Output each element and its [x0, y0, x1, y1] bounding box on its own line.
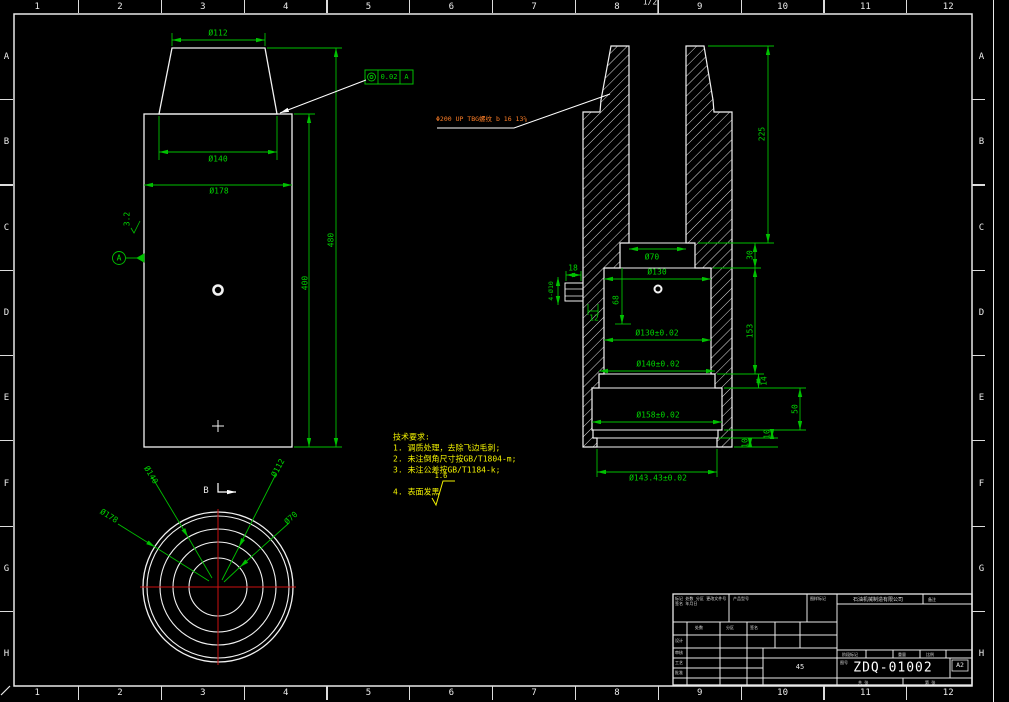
zone-label: 11	[860, 688, 871, 698]
dim-12: 12	[589, 314, 599, 323]
zone-tick	[78, 0, 79, 13]
zone-tick	[244, 0, 245, 13]
dim-14: 14	[760, 376, 769, 386]
tolerance-value: 0.02	[381, 73, 398, 81]
zone-label: 6	[449, 2, 454, 12]
dim-30: 30	[746, 250, 755, 260]
zone-tick	[492, 0, 493, 13]
zone-tick	[972, 270, 985, 271]
zone-tick	[741, 686, 742, 700]
dim-d140-tol: Ø140±0.02	[636, 360, 679, 369]
zone-tick	[658, 0, 659, 13]
dim-400: 400	[301, 276, 310, 290]
zone-tick	[492, 686, 493, 700]
tb-bottom-label-2: 第 张	[925, 680, 935, 685]
zone-label: 1	[34, 2, 39, 12]
zone-label: 10	[777, 688, 788, 698]
notes-item-1: 1. 调质处理，去除飞边毛刺;	[393, 443, 500, 454]
tb-row-label-2: 审核	[675, 650, 683, 655]
zone-tick	[972, 99, 985, 100]
zone-tick	[823, 0, 824, 13]
sheet-frame	[1, 0, 994, 702]
zone-label: C	[4, 223, 9, 233]
notes-surface-value: 1.6	[435, 472, 448, 480]
notes-item-4: 4. 表面发黑	[393, 487, 439, 498]
zone-tick	[161, 0, 162, 13]
zone-label: 8	[614, 688, 619, 698]
zone-label: 4	[283, 688, 288, 698]
zone-label: 5	[366, 688, 371, 698]
dim-68: 68	[612, 295, 621, 305]
centerlines	[140, 509, 296, 665]
zone-label: 7	[531, 2, 536, 12]
zone-label: 9	[697, 2, 702, 12]
zone-label: A	[4, 52, 9, 62]
zone-label: 12	[943, 2, 954, 12]
dim-d130: Ø130	[647, 268, 666, 277]
dim-d130-tol: Ø130±0.02	[635, 329, 678, 338]
zone-label: 3	[200, 2, 205, 12]
dim-10b: 10	[741, 438, 750, 448]
dim-50: 50	[791, 404, 800, 414]
thread-note: Φ200 UP TBG螺纹 b 16 13⅝	[436, 113, 527, 123]
zone-tick	[575, 0, 576, 13]
zone-label: 12	[943, 688, 954, 698]
tb-company: 石油机械制造有限公司	[853, 597, 903, 603]
zone-tick	[906, 686, 907, 700]
tb-col-header-1: 处数	[695, 625, 703, 630]
zone-tick	[972, 184, 985, 185]
zone-label: 10	[777, 2, 788, 12]
zone-label: D	[979, 308, 984, 318]
dim-d178: Ø178	[209, 187, 228, 196]
zone-tick	[78, 686, 79, 700]
zone-tick	[326, 0, 327, 13]
tolerance-datum: A	[404, 73, 408, 81]
view-direction-arrow	[218, 483, 236, 492]
zone-label: E	[4, 393, 9, 403]
zone-label: 4	[283, 2, 288, 12]
zone-label: 9	[697, 688, 702, 698]
zone-tick	[161, 686, 162, 700]
zone-label: D	[4, 308, 9, 318]
zone-label: 5	[366, 2, 371, 12]
tb-col-header-2: 分区	[726, 625, 734, 630]
front-view-dims	[113, 33, 414, 447]
drawing-sheet: Ø112 Ø140 Ø178 400 480 3.2 A 0.02 A Φ200…	[0, 0, 1009, 702]
tb-rev-header: 标记 处数 分区 更改文件号 签名 年月日	[675, 596, 727, 606]
zone-tick	[972, 355, 985, 356]
dim-d112: Ø112	[208, 29, 227, 38]
zone-label: 6	[449, 688, 454, 698]
zone-tick	[409, 686, 410, 700]
tb-mark-label: 图样标记	[810, 596, 826, 601]
dim-d143-tol: Ø143.43±0.02	[629, 474, 687, 483]
notes-item-2: 2. 未注倒角尺寸按GB/T1804-m;	[393, 454, 516, 465]
surface-finish-value: 3.2	[123, 212, 132, 226]
zone-label: H	[979, 649, 984, 659]
zone-label: G	[4, 564, 9, 574]
zone-tick	[972, 440, 985, 441]
tb-row-label-1: 设计	[675, 638, 683, 643]
zone-tick	[658, 686, 659, 700]
bottom-view	[118, 474, 296, 665]
dim-480: 480	[327, 233, 336, 247]
zone-tick	[0, 270, 13, 271]
zone-label: B	[4, 137, 9, 147]
zone-label: 7	[531, 688, 536, 698]
zone-label: C	[979, 223, 984, 233]
zone-tick	[0, 99, 13, 100]
zone-label: 8	[614, 2, 619, 12]
zone-tick	[972, 526, 985, 527]
zone-label: E	[979, 393, 984, 403]
dim-225: 225	[758, 127, 767, 141]
tb-stage-label-2: 重量	[898, 652, 906, 657]
datum-label: A	[117, 254, 122, 263]
tb-material: 45	[796, 663, 804, 671]
zone-tick	[326, 686, 327, 700]
zone-tick	[741, 0, 742, 13]
zone-label: F	[4, 479, 9, 489]
zone-label: G	[979, 564, 984, 574]
tb-dwg-label: 图号	[840, 660, 848, 665]
zone-tick	[0, 355, 13, 356]
tb-row-label-4: 批准	[675, 670, 683, 675]
zone-tick	[0, 611, 13, 612]
zone-tick	[409, 0, 410, 13]
tb-row-label-3: 工艺	[675, 660, 683, 665]
tb-sheet-size: A2	[956, 661, 964, 669]
zone-tick	[0, 440, 13, 441]
dim-10a: 10	[763, 429, 772, 439]
zone-tick	[0, 526, 13, 527]
tb-note-label: 备注	[928, 597, 936, 602]
zone-tick	[823, 686, 824, 700]
zone-tick	[972, 611, 985, 612]
zone-label: 2	[117, 688, 122, 698]
zone-label: 2	[117, 2, 122, 12]
zone-label: 1	[34, 688, 39, 698]
notes-title: 技术要求:	[393, 432, 430, 443]
zone-label: B	[979, 137, 984, 147]
tb-stage-label-3: 比例	[926, 652, 934, 657]
tolerance-leader	[280, 80, 366, 113]
tb-col-header-3: 签名	[750, 625, 758, 630]
tb-drawing-number: ZDQ-01002	[853, 661, 932, 676]
zone-tick	[575, 686, 576, 700]
zone-label: A	[979, 52, 984, 62]
dim-d140: Ø140	[208, 155, 227, 164]
dim-18: 18	[568, 264, 578, 273]
zone-label: F	[979, 479, 984, 489]
zone-label: 11	[860, 2, 871, 12]
view-label-b: B	[203, 486, 208, 496]
zone-tick	[244, 686, 245, 700]
zone-tick	[906, 0, 907, 13]
zone-label: H	[4, 649, 9, 659]
dim-4xd10: 4-Ø10	[547, 281, 555, 301]
fold-mark: 1/2	[643, 0, 657, 7]
dim-153: 153	[746, 324, 755, 338]
tb-product-label: 产品型号	[733, 596, 749, 601]
tb-bottom-label-1: 共 张	[858, 680, 868, 685]
zone-tick	[0, 184, 13, 185]
dim-d158-tol: Ø158±0.02	[636, 411, 679, 420]
tb-stage-label-1: 阶段标记	[842, 652, 858, 657]
section-view	[437, 46, 732, 447]
zone-label: 3	[200, 688, 205, 698]
dim-d70: Ø70	[645, 253, 659, 262]
front-view	[144, 48, 292, 447]
